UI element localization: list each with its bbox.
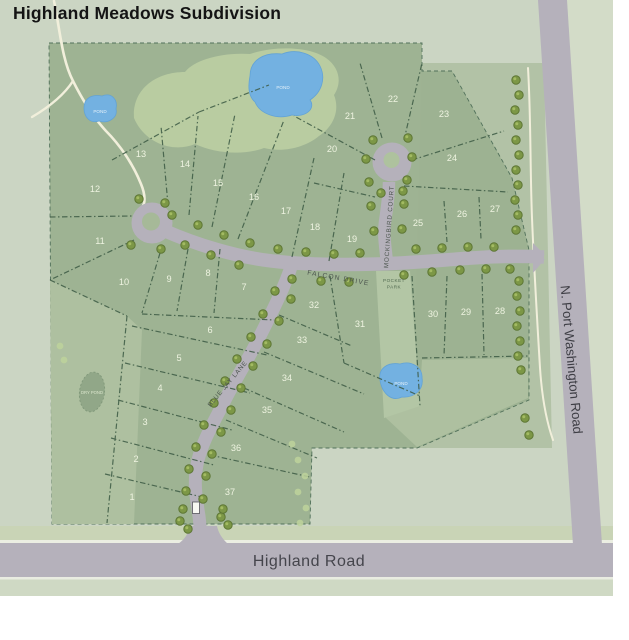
lot-number-36: 36 — [231, 443, 241, 453]
tree-icon-highlight — [518, 367, 521, 370]
tree-icon — [514, 121, 522, 129]
tree-icon-highlight — [429, 269, 432, 272]
tree-icon-highlight — [195, 222, 198, 225]
shrub-icon — [289, 441, 296, 448]
tree-icon — [127, 241, 135, 249]
tree-icon-highlight — [250, 363, 253, 366]
shrub-icon — [295, 457, 302, 464]
tree-icon — [192, 443, 200, 451]
tree-icon — [512, 166, 520, 174]
tree-icon — [513, 322, 521, 330]
tree-icon — [377, 189, 385, 197]
lot-number-2: 2 — [133, 454, 138, 464]
tree-icon-highlight — [491, 244, 494, 247]
lot-number-3: 3 — [142, 417, 147, 427]
tree-icon — [161, 199, 169, 207]
tree-icon-highlight — [272, 288, 275, 291]
lot-number-34: 34 — [282, 373, 292, 383]
tree-icon-highlight — [515, 122, 518, 125]
tree-icon — [274, 245, 282, 253]
tree-icon-highlight — [303, 249, 306, 252]
lot-number-23: 23 — [439, 109, 449, 119]
lot-number-14: 14 — [180, 159, 190, 169]
lot-number-17: 17 — [281, 206, 291, 216]
lot-number-27: 27 — [490, 204, 500, 214]
lot-number-22: 22 — [388, 94, 398, 104]
lot-number-26: 26 — [457, 209, 467, 219]
lot-number-35: 35 — [262, 405, 272, 415]
tree-icon-highlight — [218, 514, 221, 517]
tree-icon — [514, 211, 522, 219]
tree-icon — [176, 517, 184, 525]
tree-icon-highlight — [399, 226, 402, 229]
tree-icon — [237, 384, 245, 392]
plat-map-page: Highland Meadows Subdivision — [0, 0, 629, 640]
tree-icon — [199, 495, 207, 503]
tree-icon — [482, 265, 490, 273]
tree-icon — [224, 521, 232, 529]
tree-icon-highlight — [136, 196, 139, 199]
tree-icon-highlight — [409, 154, 412, 157]
tree-icon-highlight — [247, 240, 250, 243]
lot-number-9: 9 — [166, 274, 171, 284]
pond-northwest-label: POND — [93, 109, 107, 114]
tree-icon — [200, 421, 208, 429]
lot-number-6: 6 — [207, 325, 212, 335]
shrub-icon — [57, 343, 64, 350]
tree-icon — [490, 243, 498, 251]
tree-icon-highlight — [371, 228, 374, 231]
tree-icon — [227, 406, 235, 414]
lot-number-29: 29 — [461, 307, 471, 317]
tree-icon — [370, 227, 378, 235]
lot-number-32: 32 — [309, 300, 319, 310]
tree-icon — [365, 178, 373, 186]
tree-icon-highlight — [378, 190, 381, 193]
tree-icon-highlight — [288, 296, 291, 299]
tree-icon-highlight — [516, 278, 519, 281]
tree-icon-highlight — [400, 188, 403, 191]
tree-icon-highlight — [162, 200, 165, 203]
tree-icon — [404, 134, 412, 142]
lot-number-7: 7 — [241, 282, 246, 292]
tree-icon — [516, 307, 524, 315]
tree-icon-highlight — [186, 466, 189, 469]
mockingbird-island — [384, 152, 400, 168]
tree-icon-highlight — [401, 201, 404, 204]
tree-icon — [356, 249, 364, 257]
lot-number-10: 10 — [119, 277, 129, 287]
tree-icon — [367, 202, 375, 210]
lot-number-18: 18 — [310, 222, 320, 232]
tree-icon-highlight — [368, 203, 371, 206]
tree-icon-highlight — [513, 137, 516, 140]
tree-icon-highlight — [208, 252, 211, 255]
tree-icon-highlight — [193, 444, 196, 447]
tree-icon-highlight — [225, 522, 228, 525]
tree-icon-highlight — [522, 415, 525, 418]
tree-icon — [247, 333, 255, 341]
tree-icon — [398, 225, 406, 233]
lot-number-37: 37 — [225, 487, 235, 497]
tree-icon-highlight — [515, 353, 518, 356]
tree-icon-highlight — [363, 156, 366, 159]
tree-icon — [408, 153, 416, 161]
highland-north-edge-line — [0, 540, 613, 543]
tree-icon — [516, 337, 524, 345]
tree-icon — [511, 196, 519, 204]
tree-icon — [403, 176, 411, 184]
tree-icon — [456, 266, 464, 274]
tree-icon — [506, 265, 514, 273]
tree-icon-highlight — [234, 356, 237, 359]
lot-number-19: 19 — [347, 234, 357, 244]
tree-icon — [521, 414, 529, 422]
tree-icon — [511, 106, 519, 114]
tree-icon-highlight — [158, 246, 161, 249]
tree-icon-highlight — [515, 182, 518, 185]
tree-icon — [512, 226, 520, 234]
tree-icon-highlight — [483, 266, 486, 269]
tree-icon — [512, 136, 520, 144]
tree-icon — [157, 245, 165, 253]
tree-icon-highlight — [180, 506, 183, 509]
tree-icon-highlight — [465, 244, 468, 247]
tree-icon-highlight — [515, 212, 518, 215]
tree-icon-highlight — [512, 107, 515, 110]
tree-icon-highlight — [413, 246, 416, 249]
tree-icon-highlight — [185, 526, 188, 529]
tree-icon — [263, 340, 271, 348]
tree-icon-highlight — [260, 311, 263, 314]
tree-icon — [513, 292, 521, 300]
tree-icon — [217, 513, 225, 521]
tree-icon — [208, 450, 216, 458]
tree-icon-highlight — [201, 422, 204, 425]
tree-icon — [219, 505, 227, 513]
tree-icon — [246, 239, 254, 247]
tree-icon — [288, 275, 296, 283]
tree-icon-highlight — [514, 323, 517, 326]
subdivision-map: Highland Road N. Port Washington Road FA… — [0, 0, 613, 596]
lot-number-30: 30 — [428, 309, 438, 319]
tree-icon-highlight — [517, 338, 520, 341]
tree-icon — [330, 250, 338, 258]
tree-icon-highlight — [182, 242, 185, 245]
pocket-park-label-line2: PARK — [387, 285, 402, 290]
tree-icon-highlight — [366, 179, 369, 182]
pocket-park-label-line1: POCKET — [383, 278, 405, 283]
tree-icon — [514, 352, 522, 360]
tree-icon-highlight — [514, 293, 517, 296]
lot-number-16: 16 — [249, 192, 259, 202]
tree-icon — [399, 187, 407, 195]
shrub-icon — [295, 489, 302, 496]
tree-icon-highlight — [516, 152, 519, 155]
tree-icon-highlight — [220, 506, 223, 509]
tree-icon-highlight — [289, 276, 292, 279]
pond-southeast-label: POND — [394, 381, 408, 386]
tree-icon-highlight — [221, 232, 224, 235]
tree-icon — [168, 211, 176, 219]
tree-icon — [515, 277, 523, 285]
tree-icon — [512, 76, 520, 84]
shrub-icon — [303, 505, 310, 512]
tree-icon — [514, 181, 522, 189]
tree-icon-highlight — [404, 177, 407, 180]
tree-icon-highlight — [200, 496, 203, 499]
lot-number-12: 12 — [90, 184, 100, 194]
tree-icon-highlight — [331, 251, 334, 254]
tree-icon-highlight — [276, 318, 279, 321]
tree-icon — [194, 221, 202, 229]
west-cul-de-sac-island — [142, 213, 160, 231]
tree-icon-highlight — [439, 245, 442, 248]
tree-icon — [220, 231, 228, 239]
tree-icon-highlight — [264, 341, 267, 344]
tree-icon-highlight — [512, 197, 515, 200]
tree-icon-highlight — [236, 262, 239, 265]
tree-icon-highlight — [457, 267, 460, 270]
lot-number-11: 11 — [95, 236, 105, 246]
lot-number-33: 33 — [297, 335, 307, 345]
tree-icon — [515, 91, 523, 99]
lot-number-5: 5 — [176, 353, 181, 363]
tree-icon — [202, 472, 210, 480]
tree-icon — [275, 317, 283, 325]
tree-icon — [302, 248, 310, 256]
tree-icon — [525, 431, 533, 439]
tree-icon — [135, 195, 143, 203]
lot-number-24: 24 — [447, 153, 457, 163]
south-verge — [0, 526, 613, 540]
tree-icon-highlight — [516, 92, 519, 95]
tree-icon — [400, 200, 408, 208]
tree-icon — [362, 155, 370, 163]
tree-icon — [249, 362, 257, 370]
tree-icon-highlight — [183, 488, 186, 491]
lot-number-13: 13 — [136, 149, 146, 159]
tree-icon — [271, 287, 279, 295]
tree-icon — [428, 268, 436, 276]
tree-icon-highlight — [248, 334, 251, 337]
tree-icon-highlight — [526, 432, 529, 435]
page-title: Highland Meadows Subdivision — [13, 3, 281, 24]
tree-icon — [517, 366, 525, 374]
shrub-icon — [61, 357, 68, 364]
tree-icon-highlight — [517, 308, 520, 311]
tree-icon — [217, 428, 225, 436]
shrub-icon — [297, 520, 304, 527]
tree-icon-highlight — [209, 451, 212, 454]
tree-icon — [181, 241, 189, 249]
tree-icon — [179, 505, 187, 513]
tree-icon-highlight — [218, 429, 221, 432]
tree-icon-highlight — [401, 272, 404, 275]
lot-number-1: 1 — [129, 492, 134, 502]
tree-icon-highlight — [275, 246, 278, 249]
shrub-icon — [302, 473, 309, 480]
south-margin-strip — [0, 580, 613, 597]
tree-icon-highlight — [507, 266, 510, 269]
tree-icon — [184, 525, 192, 533]
tree-icon — [287, 295, 295, 303]
tree-icon — [235, 261, 243, 269]
tree-icon — [464, 243, 472, 251]
tree-icon-highlight — [177, 518, 180, 521]
lot-number-4: 4 — [157, 383, 162, 393]
tree-icon-highlight — [203, 473, 206, 476]
tree-icon-highlight — [513, 77, 516, 80]
tree-icon-highlight — [513, 227, 516, 230]
tree-icon — [182, 487, 190, 495]
tree-icon-highlight — [169, 212, 172, 215]
lot-number-28: 28 — [495, 306, 505, 316]
tree-icon-highlight — [238, 385, 241, 388]
tree-icon-highlight — [405, 135, 408, 138]
tree-icon — [412, 245, 420, 253]
tree-icon-highlight — [128, 242, 131, 245]
pond-north-label: POND — [276, 85, 290, 90]
tree-icon-highlight — [513, 167, 516, 170]
entrance-sign-icon — [193, 502, 200, 514]
lot-number-21: 21 — [345, 111, 355, 121]
tree-icon — [515, 151, 523, 159]
tree-icon — [369, 136, 377, 144]
lot-number-8: 8 — [205, 268, 210, 278]
lot-number-31: 31 — [355, 319, 365, 329]
tree-icon — [259, 310, 267, 318]
tree-icon — [233, 355, 241, 363]
tree-icon — [207, 251, 215, 259]
lot-number-25: 25 — [413, 218, 423, 228]
dry-pond-label: DRY POND — [81, 390, 103, 395]
highland-road-label: Highland Road — [253, 553, 365, 570]
lot-number-15: 15 — [213, 178, 223, 188]
tree-icon — [438, 244, 446, 252]
tree-icon — [185, 465, 193, 473]
tree-icon-highlight — [357, 250, 360, 253]
lot-number-20: 20 — [327, 144, 337, 154]
highland-south-edge-line — [0, 577, 613, 580]
tree-icon-highlight — [228, 407, 231, 410]
tree-icon-highlight — [370, 137, 373, 140]
